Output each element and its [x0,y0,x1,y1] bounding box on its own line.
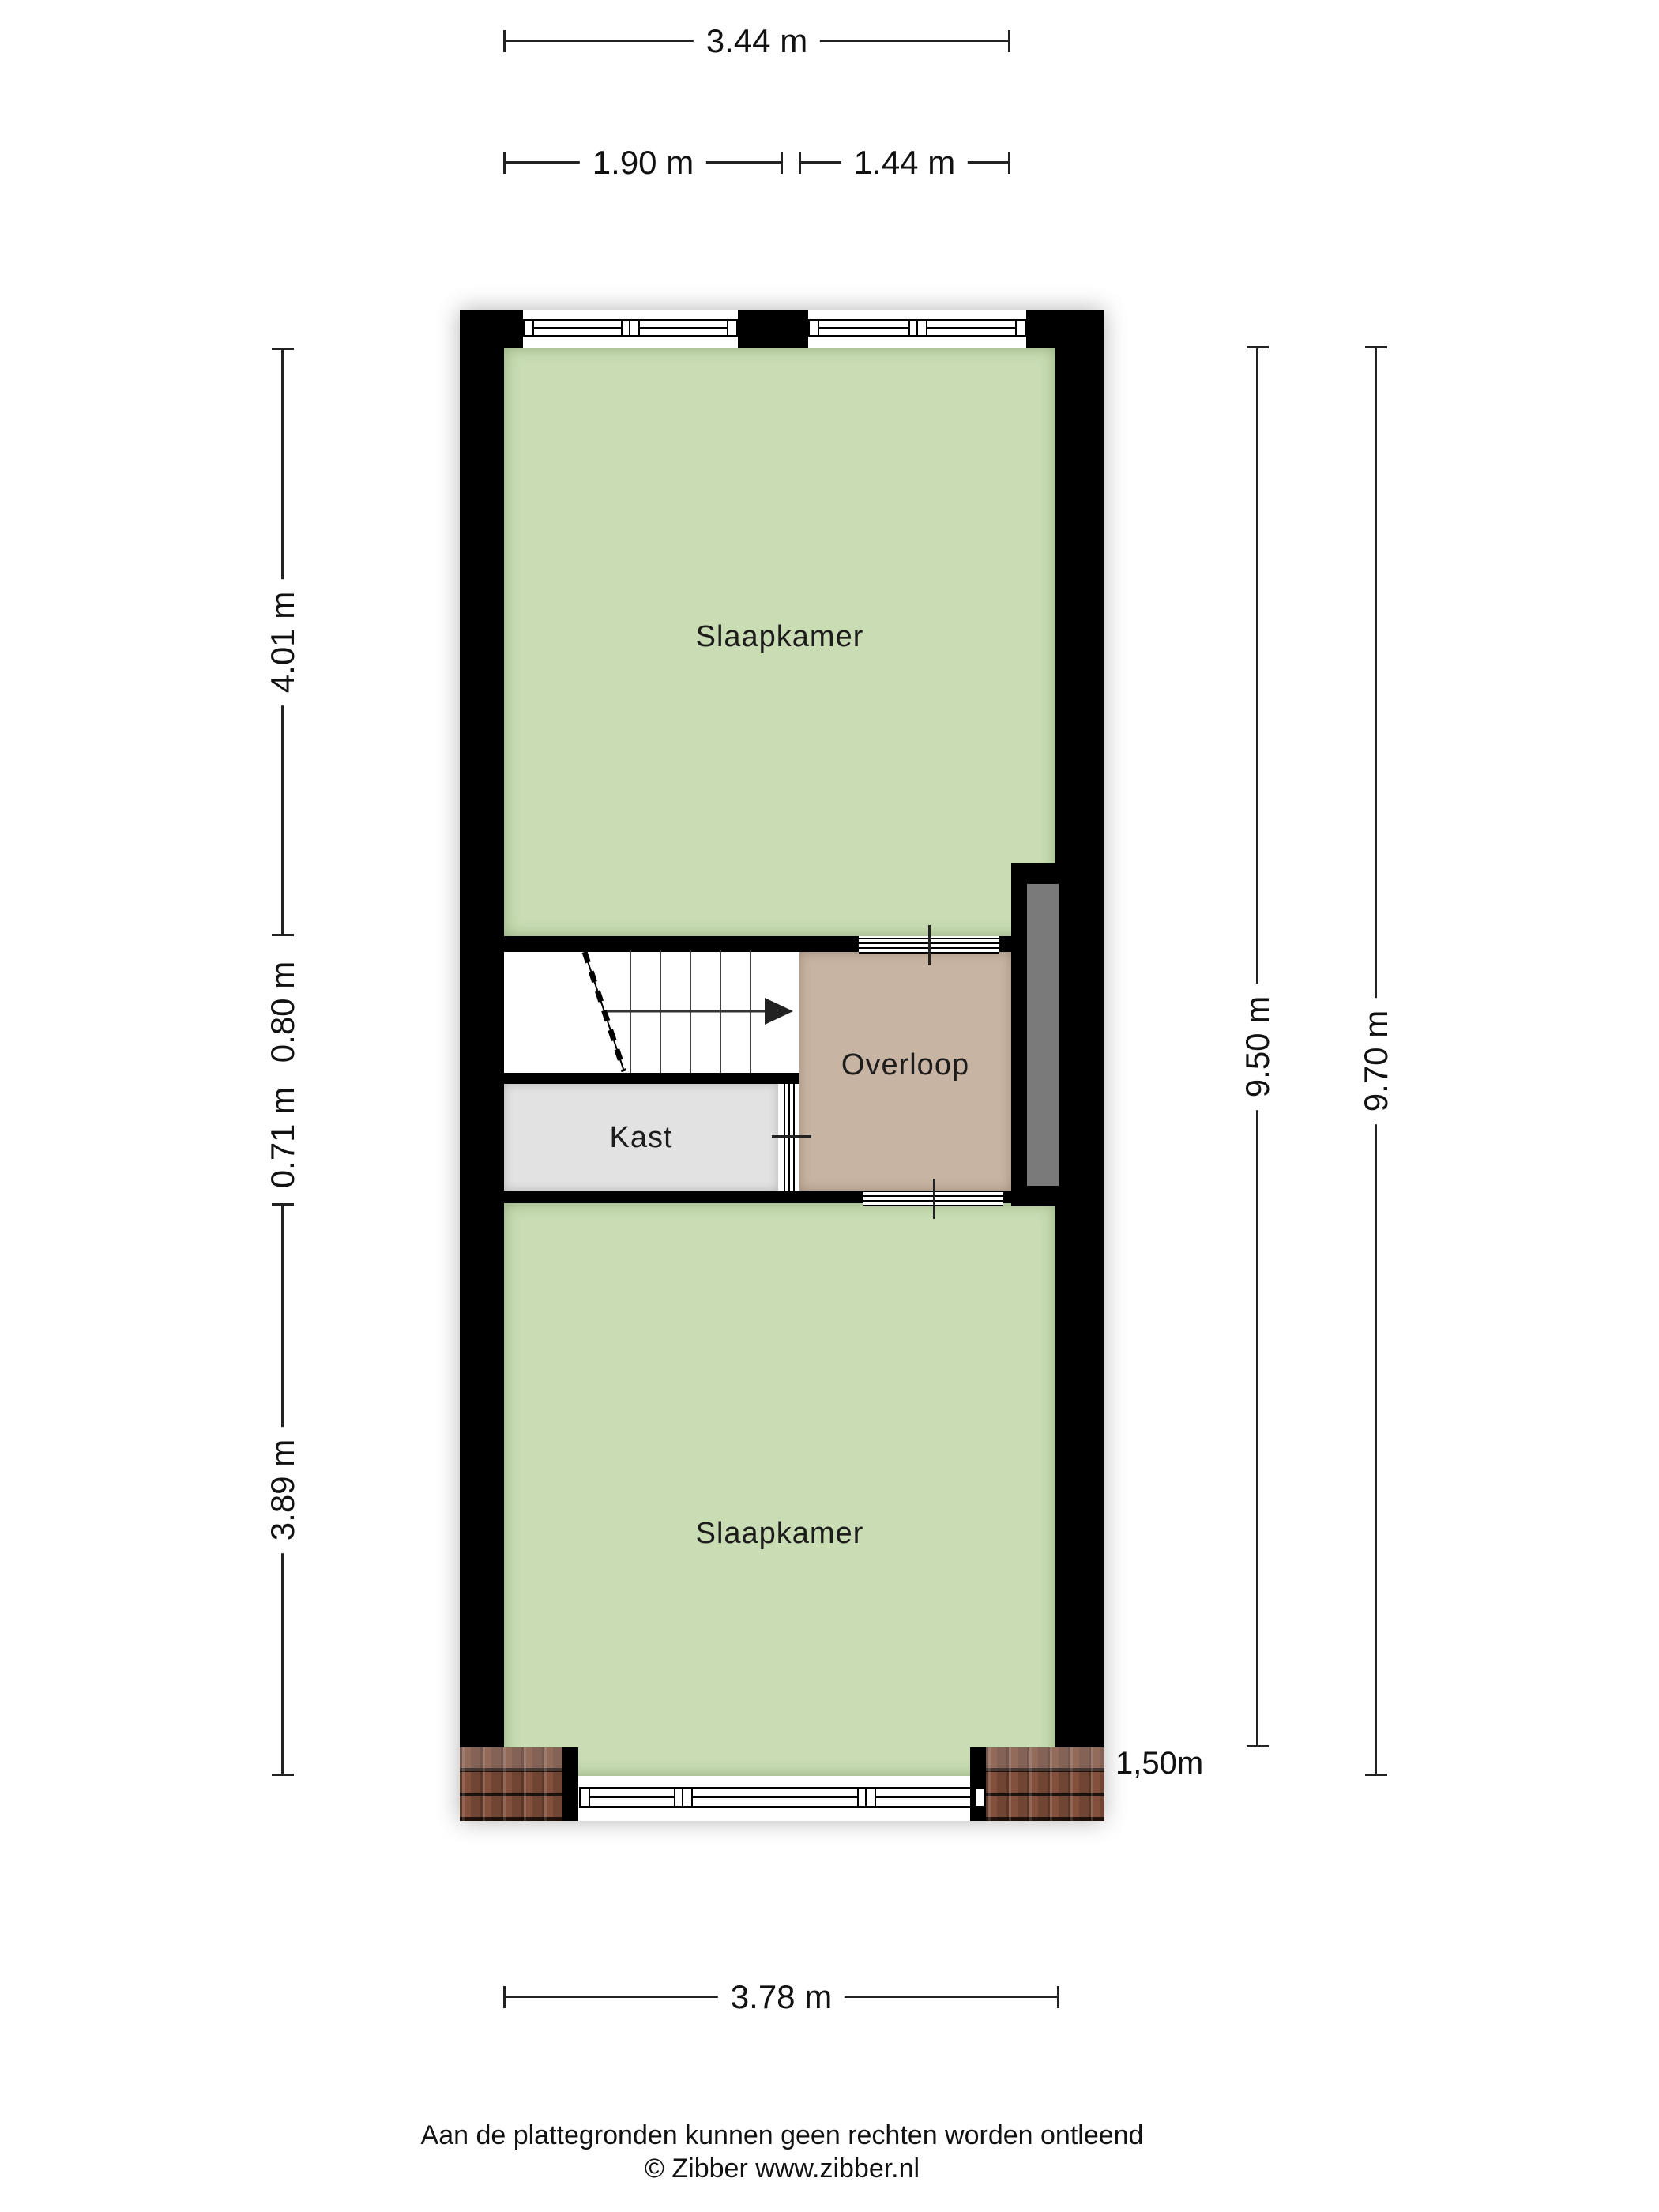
wall-left [460,348,504,1747]
dimension-top-left: 1.90 m [503,152,783,173]
dimension-right-outer: 9.70 m [1366,346,1386,1776]
room-label-slaapkamer-bottom: Slaapkamer [504,1517,1055,1551]
room-label-kast: Kast [504,1121,778,1155]
roof-tiles-left [460,1747,562,1821]
footer-copyright: © Zibber www.zibber.nl [111,2152,1454,2185]
footer: Aan de plattegronden kunnen geen rechten… [111,2119,1454,2185]
window-cap [974,1787,985,1808]
dimension-top-total: 3.44 m [503,31,1010,51]
window-mullion [682,1787,693,1808]
window-mullion [629,319,640,337]
wall-kast-bottom [504,1191,863,1203]
dimension-label: 9.70 m [1357,998,1395,1124]
dimension-label: 3.89 m [264,1426,302,1552]
dimension-label: 0.80 m [264,948,302,1074]
dimension-label: 1.44 m [841,144,968,182]
room-slaapkamer-bottom [504,1203,1055,1776]
window-cap [808,319,819,337]
dimension-top-right: 1.44 m [799,152,1010,173]
dimension-left-4: 3.89 m [273,1203,293,1776]
window-cap [579,1787,590,1808]
dimension-label: 9.50 m [1239,984,1277,1110]
wall-bottom-right-seg [1003,1191,1059,1203]
void-panel [1025,882,1060,1187]
dimension-label: 3.44 m [694,22,820,60]
knee-wall-height-label: 1,50m [1115,1746,1203,1781]
window-mullion [916,319,927,337]
wall-right-lower [1055,1206,1104,1748]
dimension-label: 3.78 m [718,1978,845,2016]
dimension-right-inner: 9.50 m [1247,346,1268,1747]
wall-below-stairs [504,1073,799,1084]
dimension-label: 4.01 m [264,578,302,705]
dimension-left-3: 0.71 m [273,1084,293,1191]
window-jamb-left [562,1747,578,1821]
wall-mid-top-right [999,936,1011,952]
door-leaf-bottom [933,1179,935,1219]
stairs-direction-arrow-icon [765,998,793,1025]
window-top-left [523,319,738,337]
window-bottom [579,1787,985,1808]
footer-disclaimer: Aan de plattegronden kunnen geen rechten… [111,2119,1454,2152]
window-cap [727,319,738,337]
room-label-slaapkamer-top: Slaapkamer [504,620,1055,654]
dimension-left-1: 4.01 m [273,348,293,936]
window-jamb-right [970,1747,986,1821]
dimension-label: 0.71 m [264,1074,302,1200]
window-cap [523,319,534,337]
dimension-bottom: 3.78 m [503,1987,1059,2007]
room-label-overloop: Overloop [799,1048,1011,1082]
window-cap [1015,319,1026,337]
window-mullion [865,1787,876,1808]
door-leaf-top [928,925,931,965]
wall-mid-top [504,936,859,952]
floorplan-canvas: Slaapkamer Overloop Kast Slaapkamer 3.44… [0,0,1659,2212]
dimension-label: 1.90 m [580,144,706,182]
roof-tiles-right [986,1747,1104,1821]
wall-right-upper [1055,348,1104,863]
dimension-left-2: 0.80 m [273,950,293,1073]
window-top-right [808,319,1026,337]
stairs [504,950,796,1073]
